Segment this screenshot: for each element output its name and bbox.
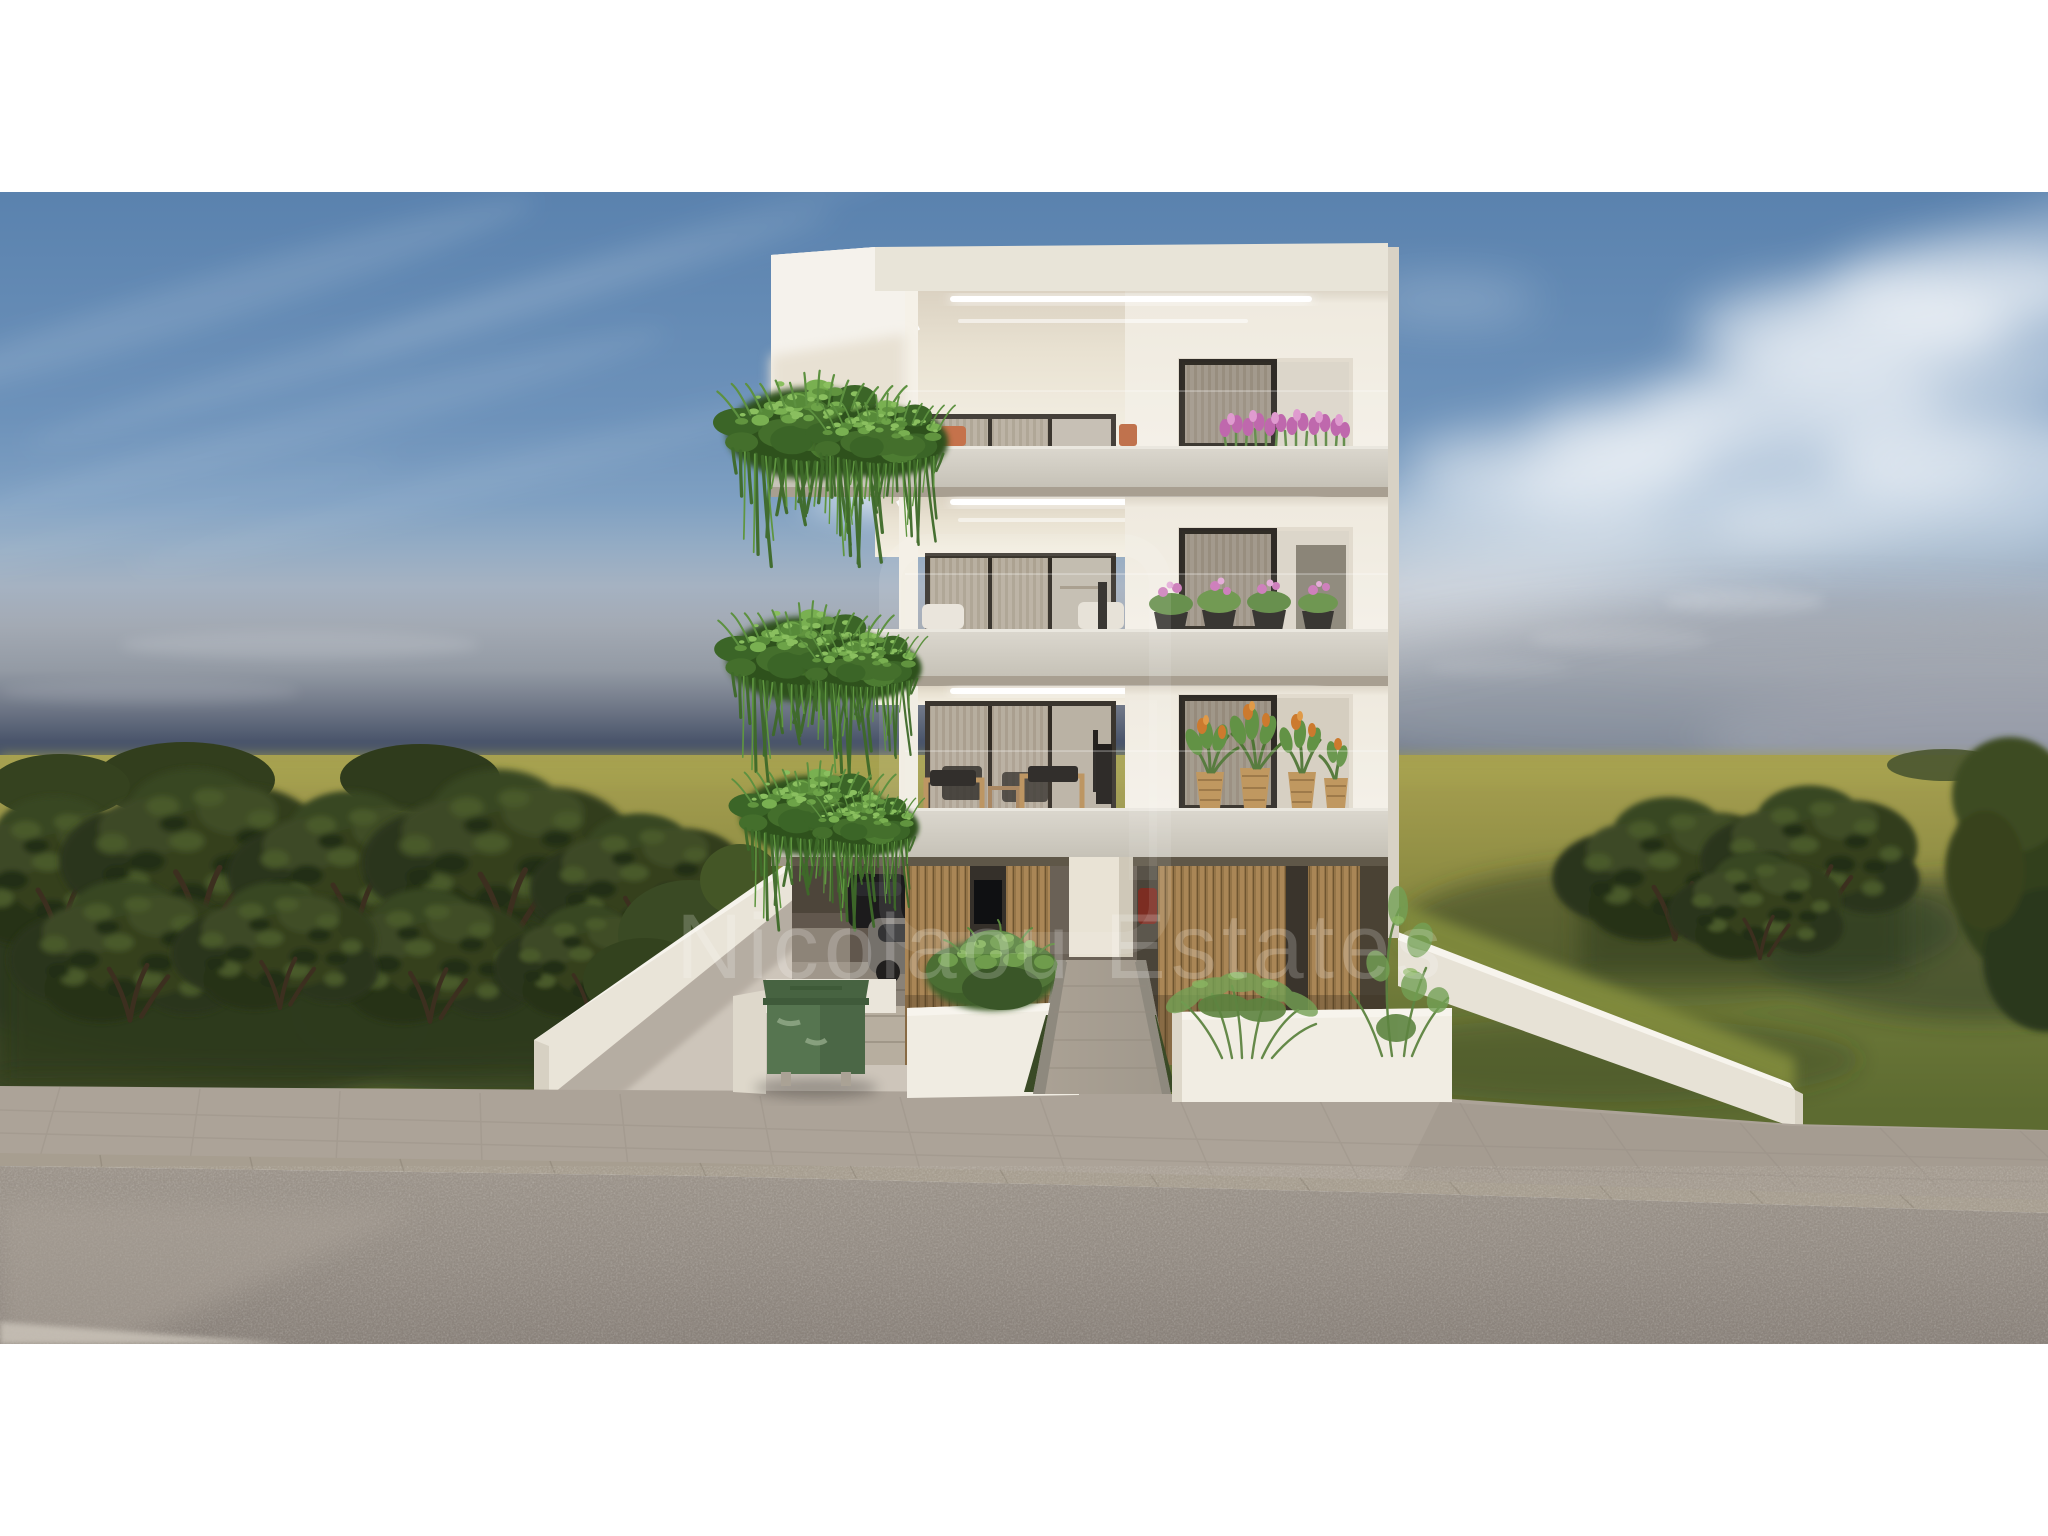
svg-text:Nicolaou Estates: Nicolaou Estates	[676, 896, 1446, 998]
